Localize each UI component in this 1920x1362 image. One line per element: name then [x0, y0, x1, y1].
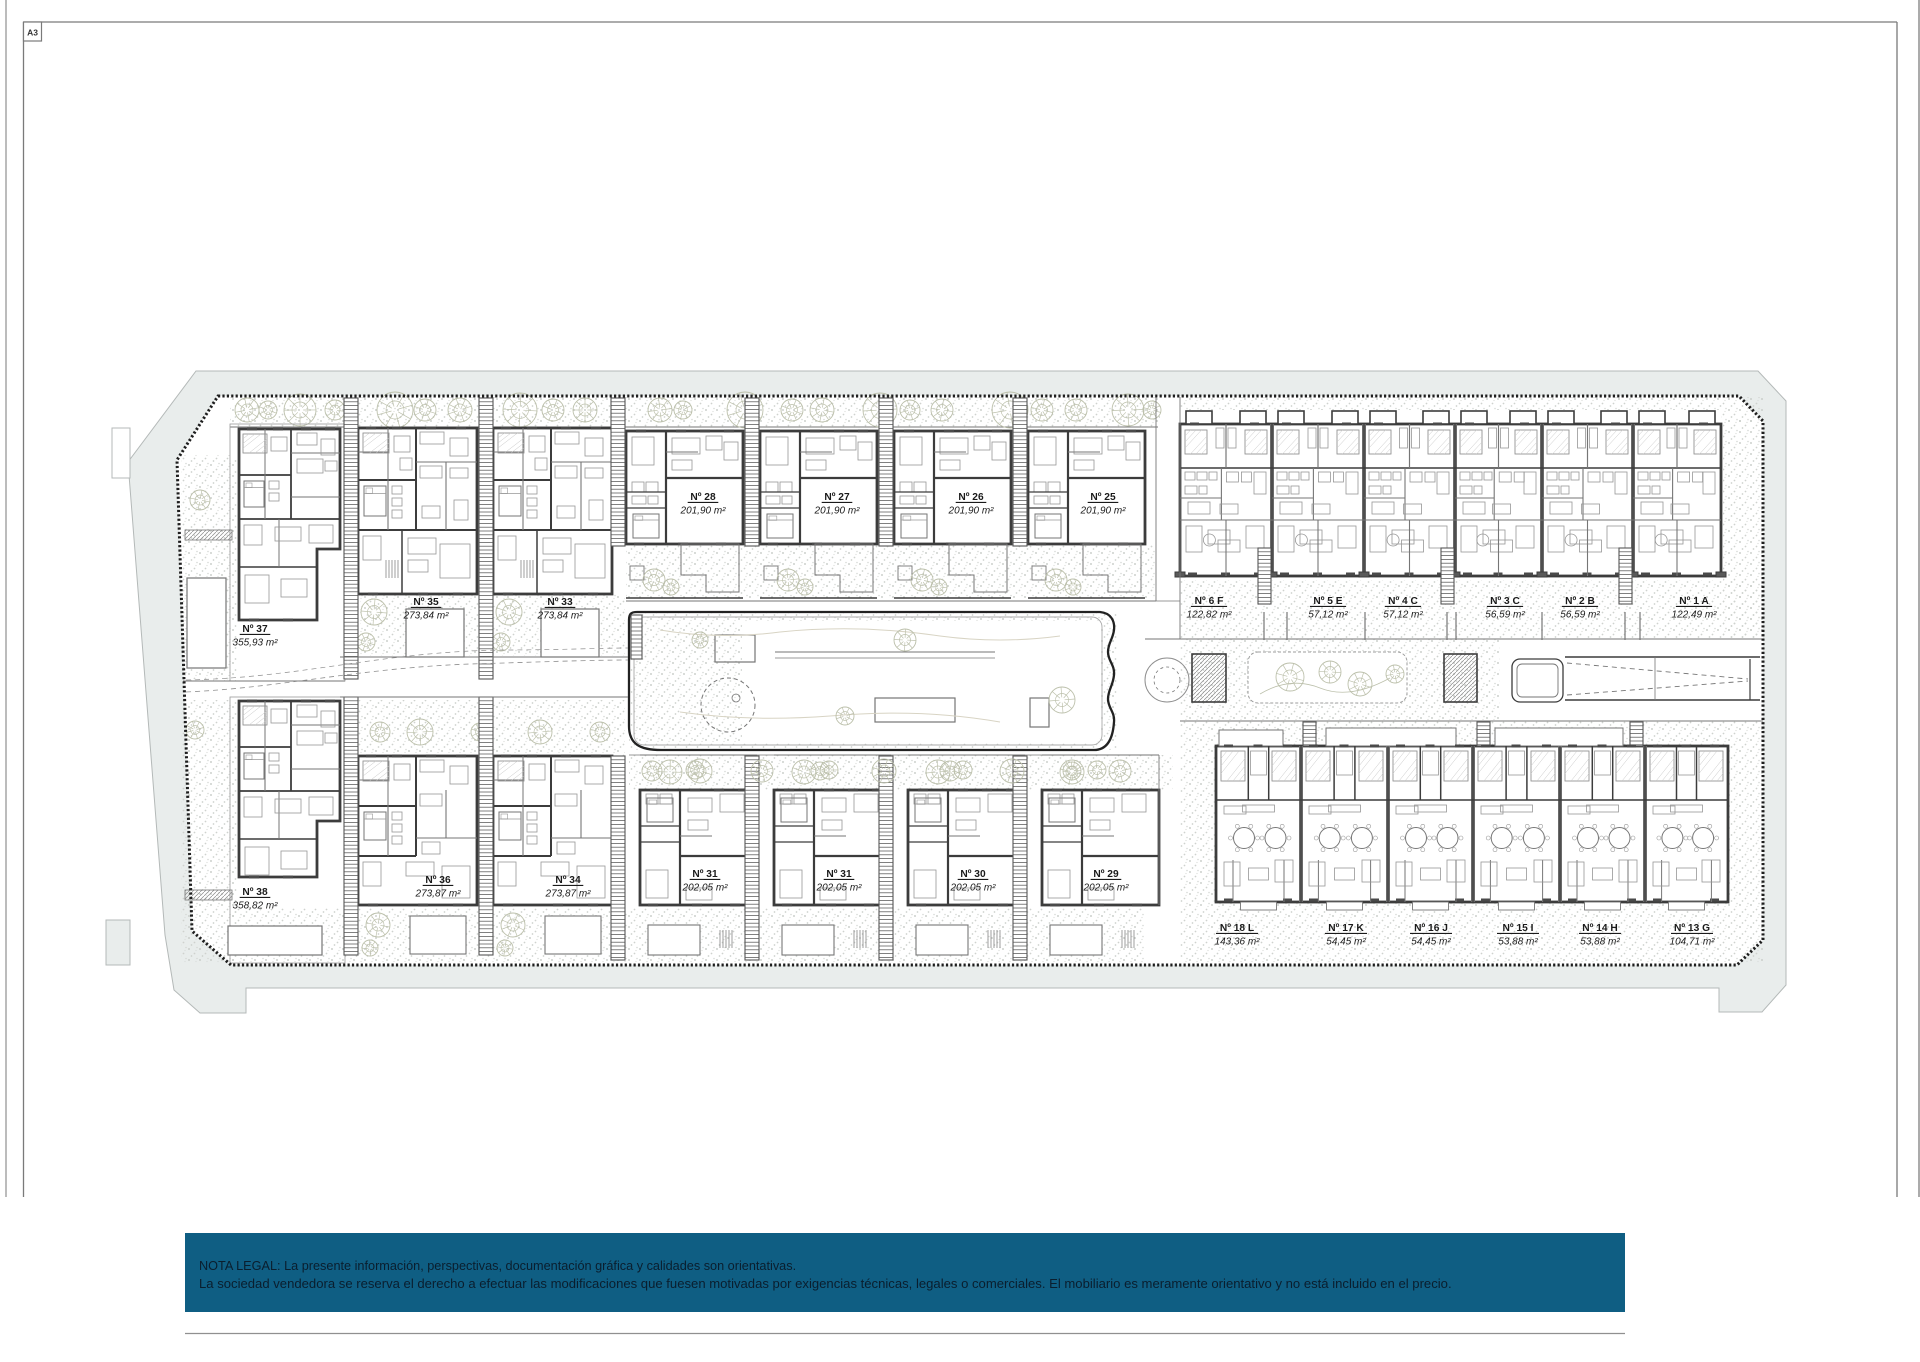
svg-text:Nº 26: Nº 26: [958, 492, 984, 503]
svg-text:Nº 17 K: Nº 17 K: [1328, 923, 1364, 934]
svg-text:La sociedad vendedora se reser: La sociedad vendedora se reserva el dere…: [199, 1276, 1452, 1291]
svg-text:Nº 28: Nº 28: [690, 492, 716, 503]
svg-text:56,59 m²: 56,59 m²: [1560, 609, 1600, 620]
svg-text:104,71 m²: 104,71 m²: [1670, 936, 1716, 947]
svg-text:Nº 14 H: Nº 14 H: [1582, 923, 1617, 934]
svg-text:Nº 30: Nº 30: [960, 869, 986, 880]
svg-text:Nº 34: Nº 34: [555, 875, 581, 886]
svg-text:201,90 m²: 201,90 m²: [948, 505, 995, 516]
svg-text:273,84 m²: 273,84 m²: [537, 610, 584, 621]
svg-text:57,12 m²: 57,12 m²: [1308, 609, 1348, 620]
svg-text:Nº 37: Nº 37: [242, 624, 268, 635]
svg-text:A3: A3: [27, 28, 38, 38]
svg-text:Nº 3 C: Nº 3 C: [1490, 596, 1520, 607]
svg-text:Nº 2 B: Nº 2 B: [1565, 596, 1595, 607]
svg-text:54,45 m²: 54,45 m²: [1411, 936, 1451, 947]
svg-text:273,87 m²: 273,87 m²: [545, 888, 592, 899]
svg-text:Nº 38: Nº 38: [242, 887, 268, 898]
svg-text:Nº 6 F: Nº 6 F: [1195, 596, 1224, 607]
svg-text:202,05 m²: 202,05 m²: [682, 882, 729, 893]
svg-text:122,82 m²: 122,82 m²: [1187, 609, 1233, 620]
svg-text:Nº 15 I: Nº 15 I: [1503, 923, 1534, 934]
svg-text:273,84 m²: 273,84 m²: [403, 610, 450, 621]
svg-text:Nº 4 C: Nº 4 C: [1388, 596, 1418, 607]
svg-text:201,90 m²: 201,90 m²: [814, 505, 861, 516]
svg-text:202,05 m²: 202,05 m²: [1083, 882, 1130, 893]
svg-text:57,12 m²: 57,12 m²: [1383, 609, 1423, 620]
svg-text:143,36 m²: 143,36 m²: [1215, 936, 1261, 947]
svg-text:358,82 m²: 358,82 m²: [233, 900, 279, 911]
svg-text:202,05 m²: 202,05 m²: [950, 882, 997, 893]
svg-text:53,88 m²: 53,88 m²: [1498, 936, 1538, 947]
svg-text:56,59 m²: 56,59 m²: [1485, 609, 1525, 620]
svg-text:Nº 25: Nº 25: [1090, 492, 1116, 503]
svg-text:Nº 33: Nº 33: [547, 597, 573, 608]
svg-text:NOTA LEGAL: La presente inform: NOTA LEGAL: La presente información, per…: [199, 1259, 796, 1273]
svg-text:54,45 m²: 54,45 m²: [1326, 936, 1366, 947]
svg-text:Nº 13 G: Nº 13 G: [1674, 923, 1710, 934]
svg-text:Nº 31: Nº 31: [692, 869, 718, 880]
svg-text:202,05 m²: 202,05 m²: [816, 882, 863, 893]
svg-text:201,90 m²: 201,90 m²: [680, 505, 727, 516]
svg-text:Nº 16 J: Nº 16 J: [1414, 923, 1448, 934]
svg-text:Nº 35: Nº 35: [413, 597, 439, 608]
svg-text:Nº 5 E: Nº 5 E: [1313, 596, 1342, 607]
svg-text:273,87 m²: 273,87 m²: [415, 888, 462, 899]
svg-text:Nº 31: Nº 31: [826, 869, 852, 880]
svg-text:Nº 1 A: Nº 1 A: [1679, 596, 1709, 607]
svg-text:122,49 m²: 122,49 m²: [1672, 609, 1718, 620]
svg-text:53,88 m²: 53,88 m²: [1580, 936, 1620, 947]
svg-text:Nº 29: Nº 29: [1093, 869, 1119, 880]
svg-text:Nº 18 L: Nº 18 L: [1220, 923, 1254, 934]
svg-text:201,90 m²: 201,90 m²: [1080, 505, 1127, 516]
svg-text:Nº 27: Nº 27: [824, 492, 850, 503]
svg-text:355,93 m²: 355,93 m²: [233, 637, 279, 648]
svg-text:Nº 36: Nº 36: [425, 875, 451, 886]
